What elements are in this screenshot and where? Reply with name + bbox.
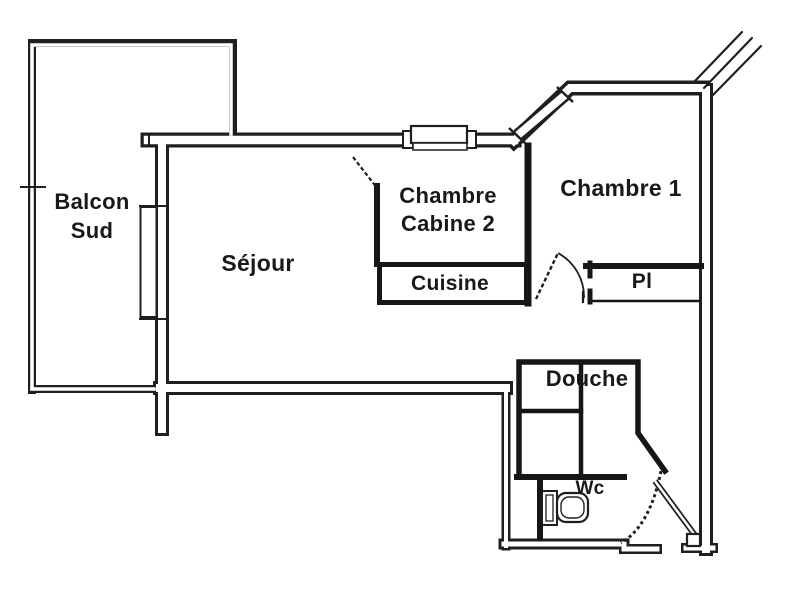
window-frame (141, 207, 157, 317)
chambre1-diagonal-window-icon (509, 87, 573, 143)
floor-plan-drawing (0, 0, 800, 589)
diag-window-body-core (518, 95, 565, 135)
window-box (411, 126, 467, 143)
toilet-tank (542, 491, 557, 525)
cabine-door-icon (353, 157, 377, 188)
entry-door-leaf-core (655, 481, 697, 538)
exterior-walls-core (32, 45, 713, 549)
exterior-walls-outer (32, 43, 713, 549)
cabine-door-leaf (353, 157, 377, 188)
cabine-window-icon (403, 126, 476, 150)
wall-douche-block (519, 362, 665, 477)
chambre1-door-leaf (536, 253, 558, 299)
core-balcony (32, 45, 231, 388)
entry-door-icon (655, 481, 700, 546)
windows (139, 87, 573, 319)
toilet-icon (542, 491, 588, 525)
party-wall-stub (695, 32, 761, 96)
window-sill (413, 143, 467, 150)
wall-cuisine-box (380, 265, 527, 303)
chambre1-door-icon (536, 253, 584, 299)
floor-plan: Balcon Sud Séjour Chambre Cabine 2 Chamb… (0, 0, 800, 589)
entry-door-jamb (687, 534, 700, 546)
interior-walls (377, 146, 701, 537)
wall-balcony (32, 43, 233, 390)
chambre1-door-swing (558, 253, 584, 298)
